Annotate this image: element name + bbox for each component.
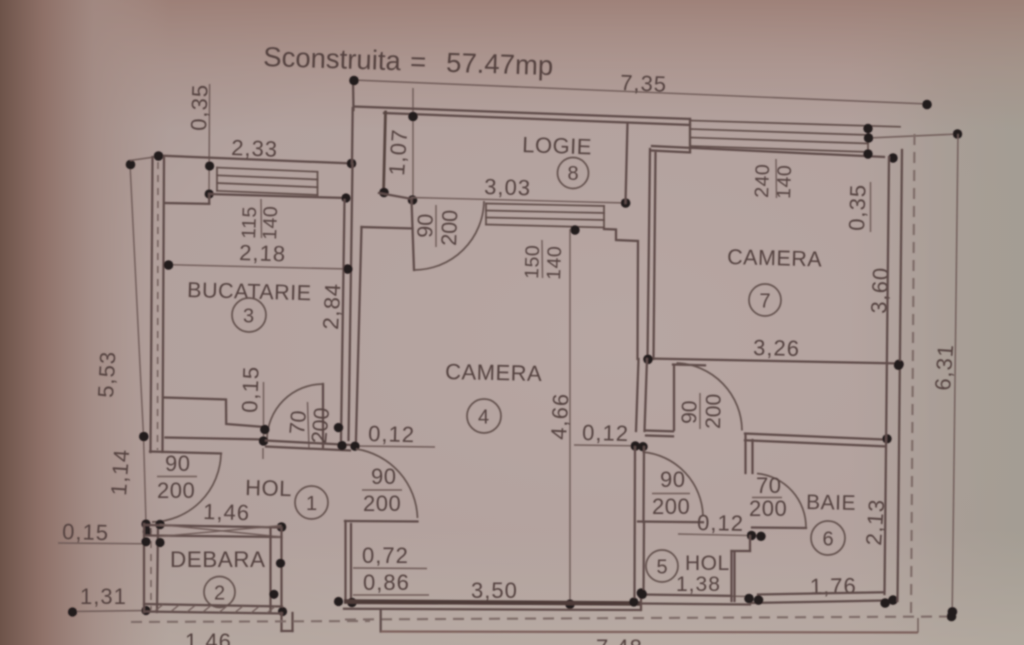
svg-text:DEBARA: DEBARA: [170, 547, 266, 572]
svg-text:0,12: 0,12: [582, 420, 629, 446]
svg-text:7,35: 7,35: [620, 70, 668, 97]
svg-text:200: 200: [652, 494, 690, 519]
svg-text:200: 200: [363, 491, 401, 516]
svg-text:1,14: 1,14: [106, 448, 134, 496]
svg-text:90: 90: [660, 467, 685, 492]
svg-text:200: 200: [307, 407, 334, 445]
svg-text:1: 1: [306, 493, 317, 515]
svg-text:90: 90: [371, 464, 396, 489]
svg-text:6: 6: [823, 529, 834, 551]
svg-text:7: 7: [760, 291, 771, 313]
svg-text:70: 70: [756, 473, 781, 498]
svg-text:3,60: 3,60: [866, 266, 893, 314]
svg-text:3: 3: [243, 306, 254, 328]
svg-text:CAMERA: CAMERA: [445, 359, 543, 386]
svg-text:0,35: 0,35: [186, 84, 213, 132]
svg-text:200: 200: [437, 209, 462, 246]
svg-text:2,33: 2,33: [231, 135, 279, 162]
svg-text:0,35: 0,35: [844, 184, 871, 232]
svg-text:2: 2: [214, 583, 225, 605]
svg-text:90: 90: [678, 400, 701, 424]
svg-text:2,18: 2,18: [239, 240, 287, 266]
svg-text:HOL: HOL: [245, 475, 292, 501]
svg-text:140: 140: [259, 205, 282, 240]
svg-text:2,84: 2,84: [318, 282, 345, 330]
svg-text:1,38: 1,38: [676, 573, 721, 596]
svg-text:200: 200: [749, 496, 787, 521]
svg-text:1,46: 1,46: [203, 499, 250, 525]
svg-text:HOL: HOL: [685, 552, 730, 575]
svg-text:240: 240: [751, 163, 774, 198]
svg-text:8: 8: [568, 163, 579, 185]
svg-text:1,31: 1,31: [80, 584, 127, 609]
svg-text:Sconstruita: Sconstruita: [263, 41, 402, 76]
svg-text:LOGIE: LOGIE: [522, 132, 593, 159]
svg-text:0,15: 0,15: [62, 519, 109, 545]
svg-text:90: 90: [165, 451, 190, 476]
svg-text:200: 200: [702, 394, 726, 429]
svg-text:1,46: 1,46: [185, 629, 232, 645]
svg-text:0,12: 0,12: [368, 421, 415, 447]
svg-text:1,76: 1,76: [810, 573, 857, 599]
svg-text:150: 150: [521, 244, 544, 279]
svg-text:4: 4: [478, 407, 489, 429]
svg-text:90: 90: [413, 213, 438, 238]
svg-text:0,72: 0,72: [362, 543, 409, 568]
svg-text:0,15: 0,15: [237, 366, 264, 414]
svg-text:3,26: 3,26: [753, 335, 800, 361]
svg-text:0,12: 0,12: [697, 510, 744, 536]
svg-text:200: 200: [157, 478, 195, 503]
svg-text:7,48: 7,48: [596, 635, 643, 645]
svg-text:140: 140: [543, 245, 566, 280]
svg-text:=: =: [410, 46, 427, 77]
svg-text:3,03: 3,03: [484, 174, 532, 200]
svg-text:6,31: 6,31: [930, 343, 958, 391]
svg-text:CAMERA: CAMERA: [727, 245, 823, 271]
svg-text:BUCATARIE: BUCATARIE: [187, 278, 312, 305]
svg-text:5,53: 5,53: [93, 350, 120, 398]
svg-text:0,86: 0,86: [363, 570, 410, 595]
svg-text:BAIE: BAIE: [806, 491, 856, 515]
svg-text:57.47mp: 57.47mp: [446, 47, 554, 81]
svg-text:3,50: 3,50: [471, 578, 518, 603]
svg-text:115: 115: [238, 206, 261, 239]
svg-text:5: 5: [657, 557, 668, 579]
svg-text:1,07: 1,07: [384, 128, 412, 176]
svg-text:4,66: 4,66: [546, 392, 573, 440]
